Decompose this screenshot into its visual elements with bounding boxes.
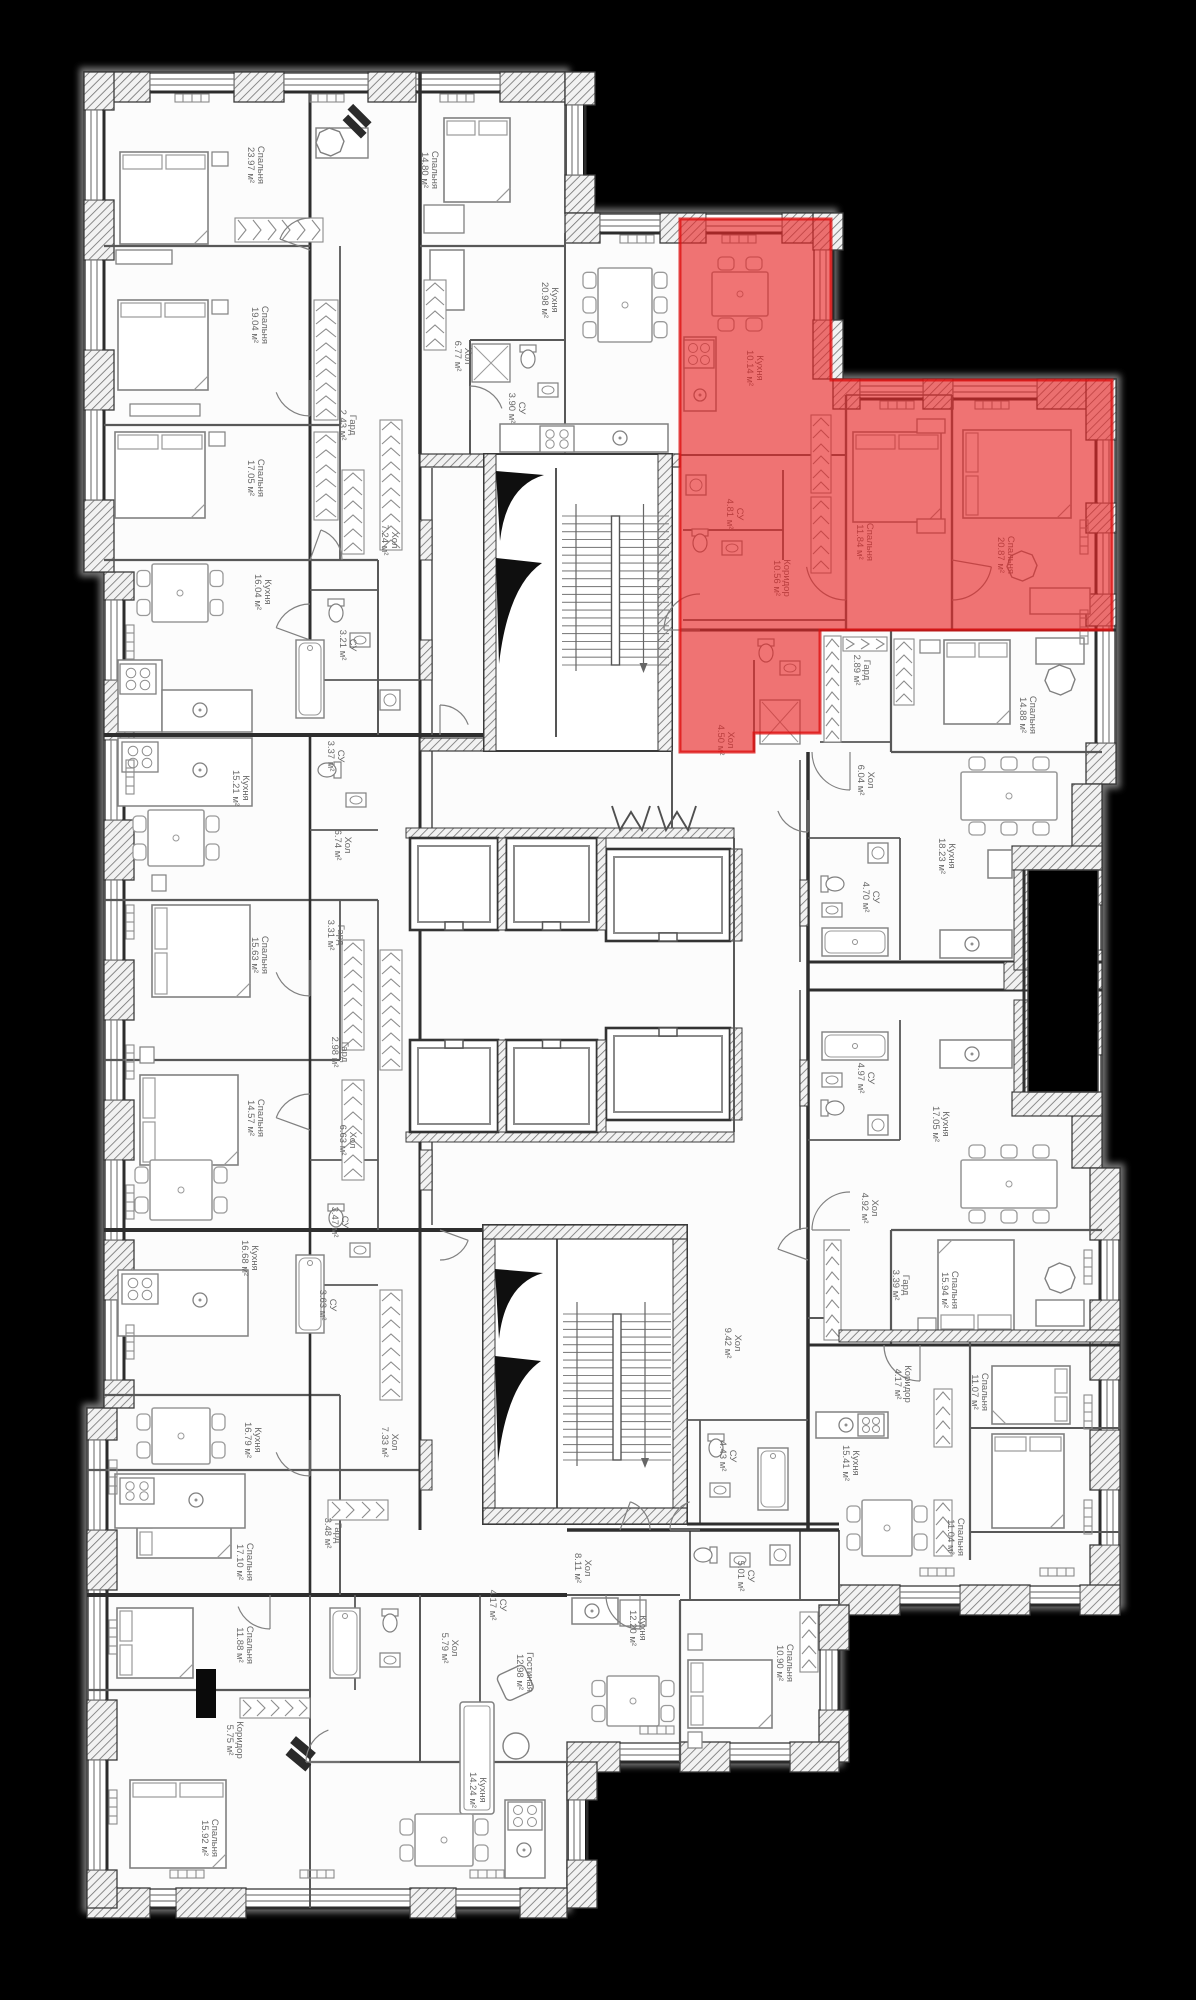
svg-text:12.98 м²: 12.98 м²	[514, 1654, 525, 1690]
svg-text:6.63 м²: 6.63 м²	[337, 1125, 348, 1156]
svg-text:4.17 м²: 4.17 м²	[892, 1369, 903, 1400]
svg-text:11.88 м²: 11.88 м²	[234, 1627, 245, 1662]
svg-text:14.57 м²: 14.57 м²	[245, 1100, 256, 1136]
svg-text:17.10 м²: 17.10 м²	[234, 1544, 245, 1580]
svg-text:4.92 м²: 4.92 м²	[859, 1193, 870, 1224]
svg-text:3.37 м²: 3.37 м²	[325, 741, 336, 772]
svg-text:14.80 м²: 14.80 м²	[419, 152, 430, 188]
svg-text:15.41 м²: 15.41 м²	[840, 1445, 851, 1481]
svg-text:2.98 м²: 2.98 м²	[329, 1037, 340, 1068]
svg-text:23.97 м²: 23.97 м²	[245, 147, 256, 183]
svg-text:11.07 м²: 11.07 м²	[969, 1374, 980, 1409]
svg-text:16.79 м²: 16.79 м²	[242, 1422, 253, 1458]
svg-text:10.90 м²: 10.90 м²	[774, 1645, 785, 1681]
svg-text:14.88 м²: 14.88 м²	[1017, 697, 1028, 733]
svg-text:3.47 м²: 3.47 м²	[329, 1207, 340, 1238]
svg-text:20.98 м²: 20.98 м²	[539, 282, 550, 318]
svg-text:3.90 м²: 3.90 м²	[506, 393, 517, 424]
svg-text:5.75 м²: 5.75 м²	[224, 1725, 235, 1756]
svg-text:4.43 м²: 4.43 м²	[717, 1441, 728, 1472]
svg-text:6.74 м²: 6.74 м²	[332, 830, 343, 861]
svg-text:15.21 м²: 15.21 м²	[230, 770, 241, 806]
svg-text:3.39 м²: 3.39 м²	[890, 1270, 901, 1301]
svg-text:2.43 м²: 2.43 м²	[337, 410, 348, 441]
svg-text:17.05 м²: 17.05 м²	[930, 1106, 941, 1142]
svg-text:19.04 м²: 19.04 м²	[249, 307, 260, 343]
svg-text:6.77 м²: 6.77 м²	[452, 341, 463, 372]
svg-text:9.42 м²: 9.42 м²	[722, 1328, 733, 1359]
svg-text:4.17 м²: 4.17 м²	[487, 1590, 498, 1621]
svg-text:15.63 м²: 15.63 м²	[249, 937, 260, 973]
svg-text:7.33 м²: 7.33 м²	[379, 1427, 390, 1458]
svg-text:7.24 м²: 7.24 м²	[379, 525, 390, 556]
svg-text:3.48 м²: 3.48 м²	[322, 1518, 333, 1549]
svg-text:3.21 м²: 3.21 м²	[337, 630, 348, 661]
svg-text:17.05 м²: 17.05 м²	[245, 460, 256, 496]
svg-text:5.79 м²: 5.79 м²	[439, 1633, 450, 1664]
svg-text:8.11 м²: 8.11 м²	[572, 1553, 583, 1583]
svg-text:18.23 м²: 18.23 м²	[936, 838, 947, 874]
svg-text:16.68 м²: 16.68 м²	[239, 1240, 250, 1276]
svg-text:4.70 м²: 4.70 м²	[860, 882, 871, 913]
svg-text:11.04 м²: 11.04 м²	[945, 1519, 956, 1554]
svg-text:15.92 м²: 15.92 м²	[199, 1820, 210, 1856]
svg-text:3.63 м²: 3.63 м²	[317, 1290, 328, 1321]
svg-text:14.24 м²: 14.24 м²	[467, 1772, 478, 1808]
svg-text:6.04 м²: 6.04 м²	[855, 765, 866, 796]
svg-text:2.89 м²: 2.89 м²	[851, 655, 862, 686]
svg-text:4.97 м²: 4.97 м²	[855, 1063, 866, 1094]
svg-text:5.01 м²: 5.01 м²	[735, 1561, 746, 1592]
svg-text:16.04 м²: 16.04 м²	[252, 574, 263, 610]
svg-text:12.20 м²: 12.20 м²	[627, 1610, 638, 1646]
svg-text:3.31 м²: 3.31 м²	[325, 920, 336, 951]
svg-text:15.94 м²: 15.94 м²	[939, 1272, 950, 1308]
